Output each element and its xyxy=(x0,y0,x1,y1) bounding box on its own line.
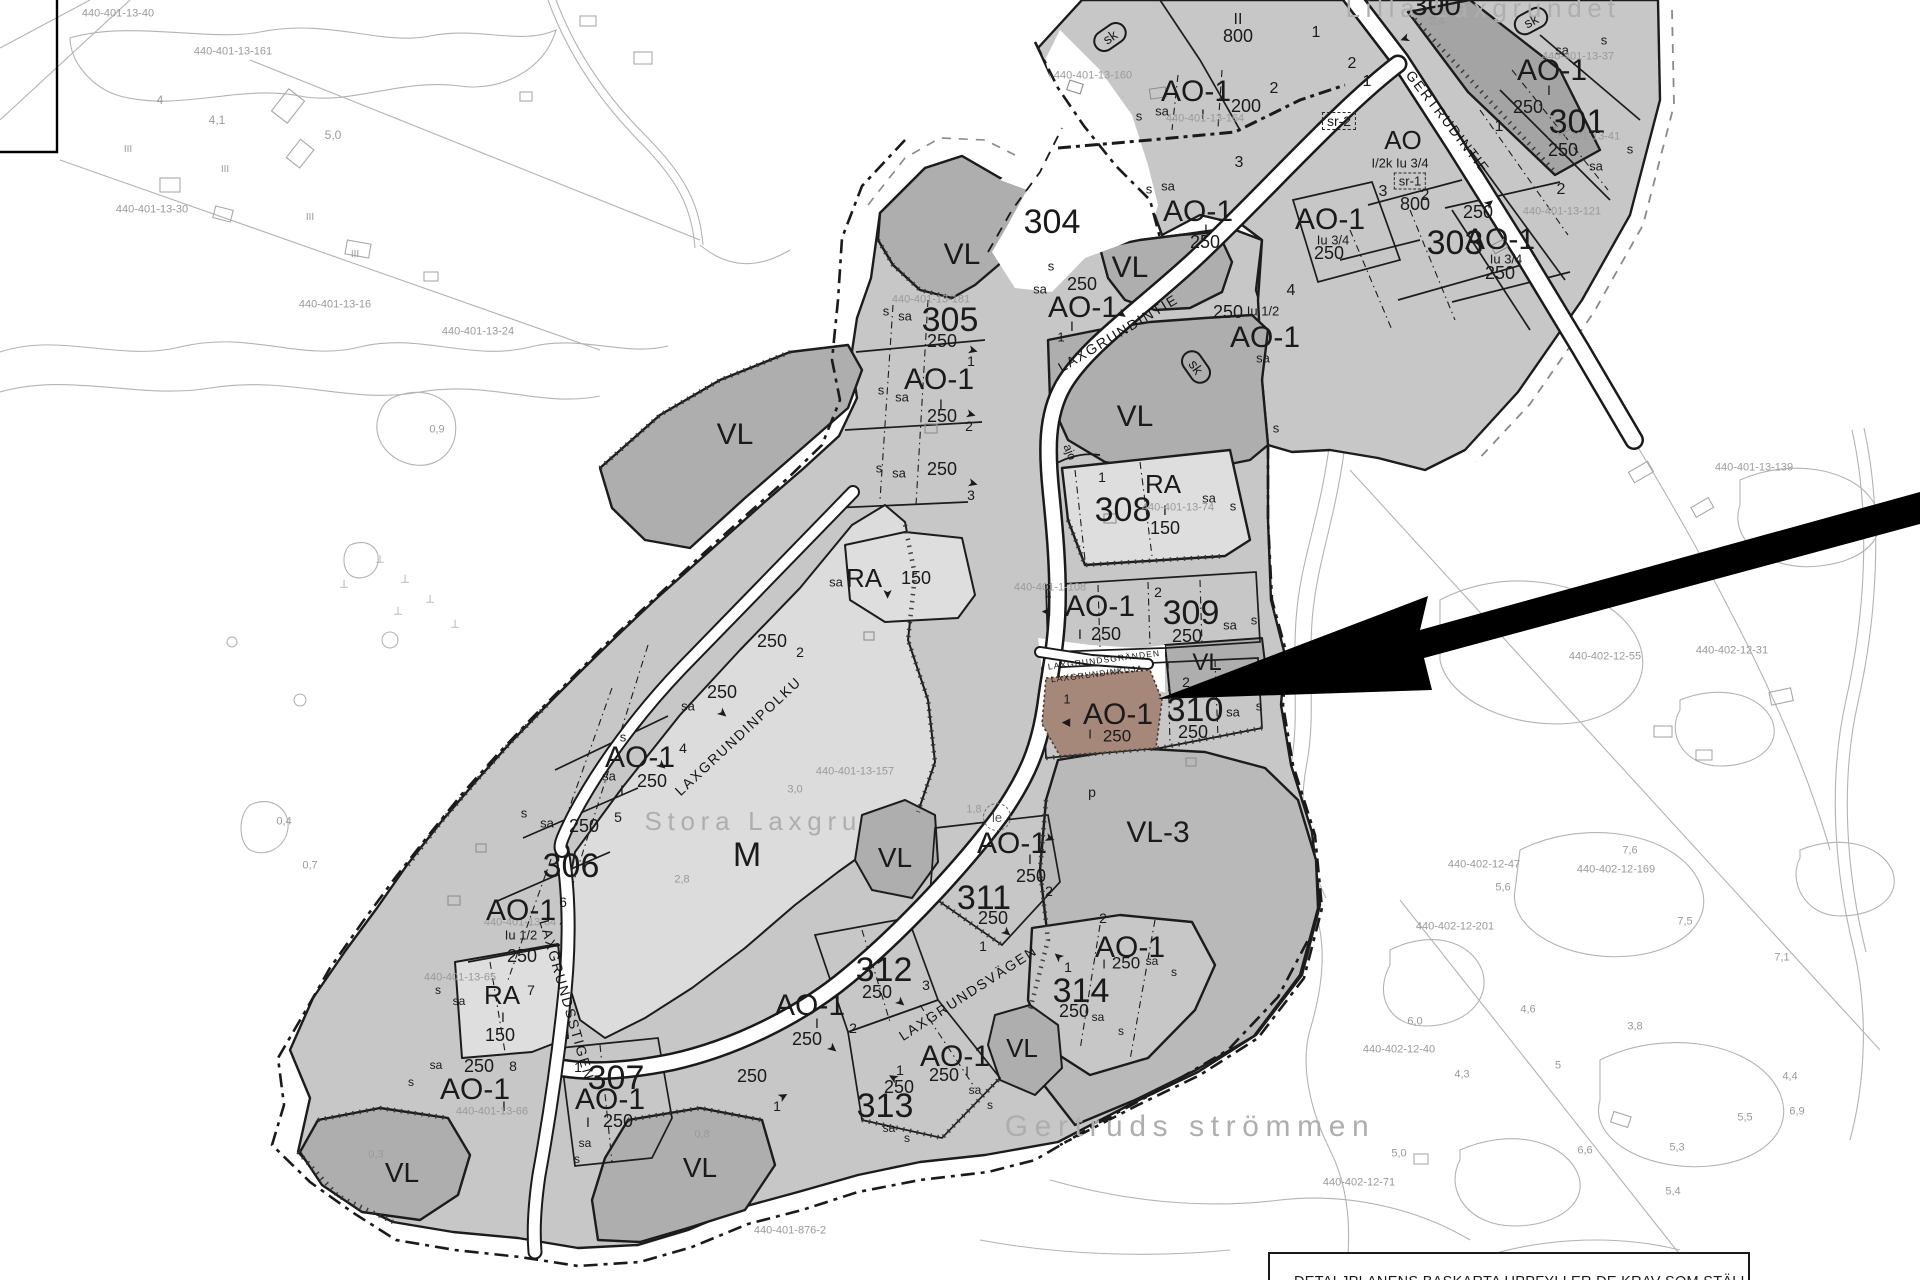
map-label: ◀ xyxy=(1042,607,1050,618)
map-label: 250 xyxy=(978,909,1008,927)
map-label: 1 xyxy=(1044,587,1051,600)
map-label: III xyxy=(306,213,314,223)
map-label: s xyxy=(1251,614,1258,627)
map-label: AO-1 xyxy=(977,829,1047,859)
map-label: 5,3 xyxy=(1669,1143,1684,1154)
map-label: 5,0 xyxy=(325,129,342,141)
map-label: 4 xyxy=(679,741,687,755)
map-label: s xyxy=(1230,500,1237,513)
map-label: VL xyxy=(1112,253,1149,283)
map-label: 7,5 xyxy=(1677,917,1692,928)
map-label: ⊥ xyxy=(450,620,460,631)
map-label: s xyxy=(1048,260,1055,273)
map-label: I/2k Iu 3/4 xyxy=(1371,157,1428,170)
map-label: 7 xyxy=(527,983,535,997)
map-label: VL xyxy=(944,240,981,270)
map-label: s xyxy=(878,384,885,397)
map-label: 2 xyxy=(1099,911,1107,925)
map-label: sa xyxy=(579,1137,592,1149)
map-label: s xyxy=(1601,34,1608,47)
map-label: 440-401-13-37 xyxy=(1542,52,1614,63)
map-label: VL xyxy=(683,1154,717,1182)
map-label: AO-1 xyxy=(1065,592,1135,622)
map-label: Iu 1/2 xyxy=(1247,305,1280,318)
map-label: LAXGRUNDINPOLKU xyxy=(672,674,803,798)
map-label: AO xyxy=(1384,127,1422,153)
map-label: s xyxy=(408,1076,414,1088)
map-label: ⊥ xyxy=(425,595,435,606)
map-label: 150 xyxy=(1150,519,1180,537)
map-label: sa xyxy=(1589,160,1603,173)
map-label: 440-401-13-30 xyxy=(116,205,188,216)
map-label: 2 xyxy=(849,1021,857,1035)
map-label: 250 xyxy=(862,983,892,1001)
map-label: VL xyxy=(1006,1035,1038,1061)
map-label: 440-401-13-164 xyxy=(1166,114,1244,125)
map-label: sa xyxy=(1256,352,1270,365)
map-label: 440-402-12-31 xyxy=(1696,646,1768,657)
map-label: 2 xyxy=(1154,585,1162,599)
map-label: 250 xyxy=(927,460,957,478)
map-label: AO-1 xyxy=(1161,77,1231,107)
map-label: VL xyxy=(1192,651,1221,675)
map-label: s xyxy=(574,1153,580,1165)
map-label: 250 xyxy=(1213,303,1243,321)
map-label: s xyxy=(987,1099,993,1111)
map-label: 440-402-12-169 xyxy=(1577,865,1655,876)
map-label: s xyxy=(876,462,883,475)
map-label: VL xyxy=(878,844,912,872)
map-label: 3 xyxy=(922,978,930,992)
map-label: sa xyxy=(1092,1011,1105,1023)
map-label: 3,0 xyxy=(787,785,802,796)
map-label: I xyxy=(1028,852,1032,866)
map-label: ➤ xyxy=(715,705,732,722)
map-label: VL xyxy=(1117,402,1154,432)
map-label: 440-401-13-139 xyxy=(1715,463,1793,474)
map-label: 0,7 xyxy=(302,861,317,872)
map-label: AO-1 xyxy=(1465,225,1535,255)
map-label: I xyxy=(1078,627,1082,641)
certification-text: DETALJPLANENS BASKARTA UPPFYLLER DE KRAV… xyxy=(1294,1274,1750,1280)
map-label: ◀ xyxy=(1062,718,1070,729)
map-label: 440-401-876-2 xyxy=(754,1226,826,1237)
map-label: III xyxy=(351,250,359,260)
map-label: 1 xyxy=(1098,470,1106,484)
map-label: 250 xyxy=(637,772,667,790)
map-label: 250 xyxy=(1103,728,1131,745)
map-label: 440-401-13-40 xyxy=(82,9,154,20)
map-label: 3 xyxy=(1235,155,1244,171)
map-label: 7,6 xyxy=(1622,846,1637,857)
map-label: 250 xyxy=(1513,98,1543,116)
map-label: 250 xyxy=(1059,1002,1089,1020)
map-label: 313 xyxy=(857,1089,914,1123)
map-label: VL xyxy=(717,420,754,450)
map-label: 250 xyxy=(757,632,787,650)
map-label: Lilla Laxgrundet xyxy=(1345,0,1620,21)
map-label: 1 xyxy=(1057,331,1064,344)
map-label: 250 xyxy=(927,407,957,425)
map-label: 440-402-12-40 xyxy=(1363,1045,1435,1056)
map-label: sa xyxy=(602,770,616,783)
map-label: M xyxy=(733,838,761,872)
map-label: 440-401-13-74 xyxy=(1142,503,1214,514)
map-label: sa xyxy=(1033,283,1047,296)
map-label: p xyxy=(1088,785,1096,799)
map-label: RA xyxy=(846,565,882,591)
map-label: 304 xyxy=(1024,205,1081,239)
map-label: sa xyxy=(1223,619,1237,632)
map-label: 440-401-13-160 xyxy=(1054,71,1132,82)
map-label: s xyxy=(1118,1025,1124,1037)
map-label: ⊥ xyxy=(375,555,385,566)
map-label: 306 xyxy=(543,849,600,883)
map-label: 8 xyxy=(509,1059,517,1073)
map-label: sa xyxy=(1161,180,1175,193)
map-label: sk xyxy=(1089,18,1131,57)
map-label: I xyxy=(501,1010,505,1024)
map-label: 440-401-13-24 xyxy=(442,327,514,338)
map-label: sa xyxy=(1226,706,1240,719)
map-label: RA xyxy=(484,982,520,1008)
map-label: 6,9 xyxy=(1789,1107,1804,1118)
map-label: 2 xyxy=(1557,182,1566,198)
basemap-certification-box: DETALJPLANENS BASKARTA UPPFYLLER DE KRAV… xyxy=(1268,1252,1750,1280)
map-label: s xyxy=(1273,422,1280,435)
map-label: 440-401-13-157 xyxy=(816,767,894,778)
map-label: 1 xyxy=(1063,693,1070,706)
map-label: s xyxy=(1136,110,1143,123)
map-label: 2 xyxy=(1182,675,1190,689)
map-label: I xyxy=(1088,728,1092,741)
map-label: 250 xyxy=(707,683,737,701)
map-label: 0,4 xyxy=(276,817,291,828)
map-label: 250 xyxy=(1178,723,1208,741)
map-label: 4,4 xyxy=(1782,1072,1797,1083)
map-label: 250 xyxy=(1485,264,1515,282)
map-label: 1 xyxy=(1312,25,1321,41)
map-label: ⊥ xyxy=(400,575,410,586)
map-label: ⊥ xyxy=(393,607,403,618)
map-label: I xyxy=(620,783,624,797)
map-label: 1 xyxy=(1363,74,1372,90)
map-label: Gertruds strömmen xyxy=(1005,1112,1376,1142)
map-label: I xyxy=(586,1115,590,1129)
map-label: LAXGRUNDSSTIGEN xyxy=(537,918,596,1082)
map-label: 250 xyxy=(927,332,957,350)
map-label: ➤ xyxy=(882,589,895,600)
map-label: 0,9 xyxy=(429,425,444,436)
map-label: Stora Laxgrundet xyxy=(645,808,936,834)
map-label: 1 xyxy=(574,1060,582,1074)
map-label: 3 xyxy=(1379,184,1388,200)
map-label: ➤ xyxy=(893,994,910,1011)
map-label: AO-1 xyxy=(440,1075,510,1105)
map-label: 440-402-12-55 xyxy=(1569,652,1641,663)
map-label: 4,3 xyxy=(1454,1070,1469,1081)
map-label: AO-1 xyxy=(1163,197,1233,227)
map-label: 250 xyxy=(929,1066,959,1084)
map-label: 250 xyxy=(1016,867,1046,885)
map-label: 440-401-13-16 xyxy=(299,300,371,311)
map-label: 5,5 xyxy=(1737,1113,1752,1124)
map-label: 7,1 xyxy=(1774,953,1789,964)
map-label: AO-1 xyxy=(1230,323,1300,353)
map-label: 250 xyxy=(569,817,599,835)
map-label: s xyxy=(883,305,890,318)
map-label: 5,0 xyxy=(1391,1149,1406,1160)
map-label: I xyxy=(1070,319,1074,333)
map-label: 1 xyxy=(896,1063,904,1077)
map-label: 2 xyxy=(796,645,804,659)
map-label: 2,8 xyxy=(674,875,689,886)
map-label: AO-1 xyxy=(775,991,845,1021)
map-label: 1 xyxy=(1495,119,1504,135)
map-label: sk xyxy=(1177,346,1216,388)
map-label: 5,6 xyxy=(1495,883,1510,894)
map-label: sa xyxy=(969,1084,982,1096)
map-label: 2 xyxy=(1045,884,1053,898)
map-label: 250 xyxy=(1172,627,1202,645)
map-label: 6,0 xyxy=(1407,1017,1422,1028)
map-label: s xyxy=(1256,700,1263,713)
map-label: I xyxy=(1547,83,1551,97)
map-label: 250 xyxy=(1548,141,1578,159)
map-label: 3 xyxy=(967,488,975,502)
map-label: 440-401-13-66 xyxy=(456,1107,528,1118)
map-label: s xyxy=(435,984,441,996)
map-label: 5,4 xyxy=(1665,1187,1680,1198)
map-label: 2 xyxy=(1421,188,1430,204)
map-label: I xyxy=(1102,958,1106,971)
map-label: 440-402-12-71 xyxy=(1323,1178,1395,1189)
map-label: 1 xyxy=(979,939,987,953)
map-label: sa xyxy=(453,995,466,1007)
map-label: 150 xyxy=(901,569,931,587)
map-label: 3,8 xyxy=(1627,1022,1642,1033)
map-label: 440-401-13-121 xyxy=(1523,207,1601,218)
map-label: sa xyxy=(898,310,912,323)
map-label: ➤ xyxy=(1398,31,1413,47)
map-label: ➤ xyxy=(825,1040,842,1057)
map-label: 250 xyxy=(1112,955,1140,972)
map-label: 2 xyxy=(965,419,973,433)
map-label: I xyxy=(815,1016,819,1030)
map-label: 440-401-13-161 xyxy=(194,47,272,58)
map-label: 250 xyxy=(737,1067,767,1085)
map-label: 0,8 xyxy=(694,1130,709,1141)
map-label: 5 xyxy=(614,810,622,824)
map-label: VL xyxy=(385,1159,419,1187)
map-label: s xyxy=(904,1132,910,1144)
map-label: ajo xyxy=(1061,442,1078,461)
map-label: 250 xyxy=(603,1112,633,1130)
map-label: sr-2 xyxy=(1322,112,1356,130)
map-label: 150 xyxy=(485,1026,515,1044)
map-label: 1,8 xyxy=(966,805,981,816)
map-label: AO-1 xyxy=(1048,293,1118,323)
zoning-map: II8001ssaAO-1I2002440-401-13-160440-401-… xyxy=(0,0,1920,1280)
map-label: I xyxy=(965,1065,969,1078)
map-label: VL-3 xyxy=(1126,818,1189,848)
map-label: s xyxy=(1627,143,1634,156)
map-label: 6 xyxy=(559,895,567,909)
map-label: sa xyxy=(883,1122,896,1134)
map-label: AO-1 xyxy=(904,365,974,395)
map-label-layer: II8001ssaAO-1I2002440-401-13-160440-401-… xyxy=(0,0,1920,1280)
map-label: s xyxy=(521,807,528,820)
map-label: 800 xyxy=(1223,27,1253,45)
map-label: 309 xyxy=(1163,596,1220,630)
map-label: AO-1 xyxy=(1295,205,1365,235)
map-label: 250 xyxy=(1091,625,1121,643)
map-label: 5 xyxy=(1555,1061,1561,1072)
map-label: AO-1 xyxy=(1083,700,1153,730)
map-label: 250 xyxy=(792,1030,822,1048)
map-label: LAXGRUNDSVÄGEN xyxy=(896,943,1039,1043)
map-label: 250 xyxy=(507,947,537,965)
map-label: sa xyxy=(895,391,909,404)
map-label: 440-401-13-41 xyxy=(1548,132,1620,143)
map-label: sa xyxy=(829,576,843,589)
map-label: 0,3 xyxy=(368,1150,383,1161)
map-label: sa xyxy=(540,817,554,830)
map-label: 440-402-12-201 xyxy=(1416,922,1494,933)
map-label: 1 xyxy=(773,1099,781,1113)
map-label: sa xyxy=(681,700,695,713)
map-label: sa xyxy=(892,467,906,480)
map-label: sa xyxy=(1146,955,1159,967)
map-label: 440-402-12-47 xyxy=(1448,860,1520,871)
map-label: sa xyxy=(430,1059,443,1071)
map-label: ⊥ xyxy=(339,580,349,591)
map-label: III xyxy=(221,165,229,175)
map-label: 2 xyxy=(1348,56,1357,72)
map-label: 2 xyxy=(1270,81,1279,97)
map-label: 300 xyxy=(1411,0,1461,21)
map-label: 4 xyxy=(1287,283,1296,299)
map-label: 250 xyxy=(1190,233,1220,251)
map-label: 4,1 xyxy=(209,114,226,126)
map-label: 4,6 xyxy=(1520,1005,1535,1016)
map-label: 4 xyxy=(157,94,164,106)
map-label: 6,6 xyxy=(1577,1146,1592,1157)
map-label: 250 xyxy=(1314,244,1344,262)
map-label: s xyxy=(1146,183,1153,196)
map-label: III xyxy=(124,145,132,155)
map-label: Iu 1/2 xyxy=(505,929,538,942)
map-label: s xyxy=(1171,966,1177,978)
